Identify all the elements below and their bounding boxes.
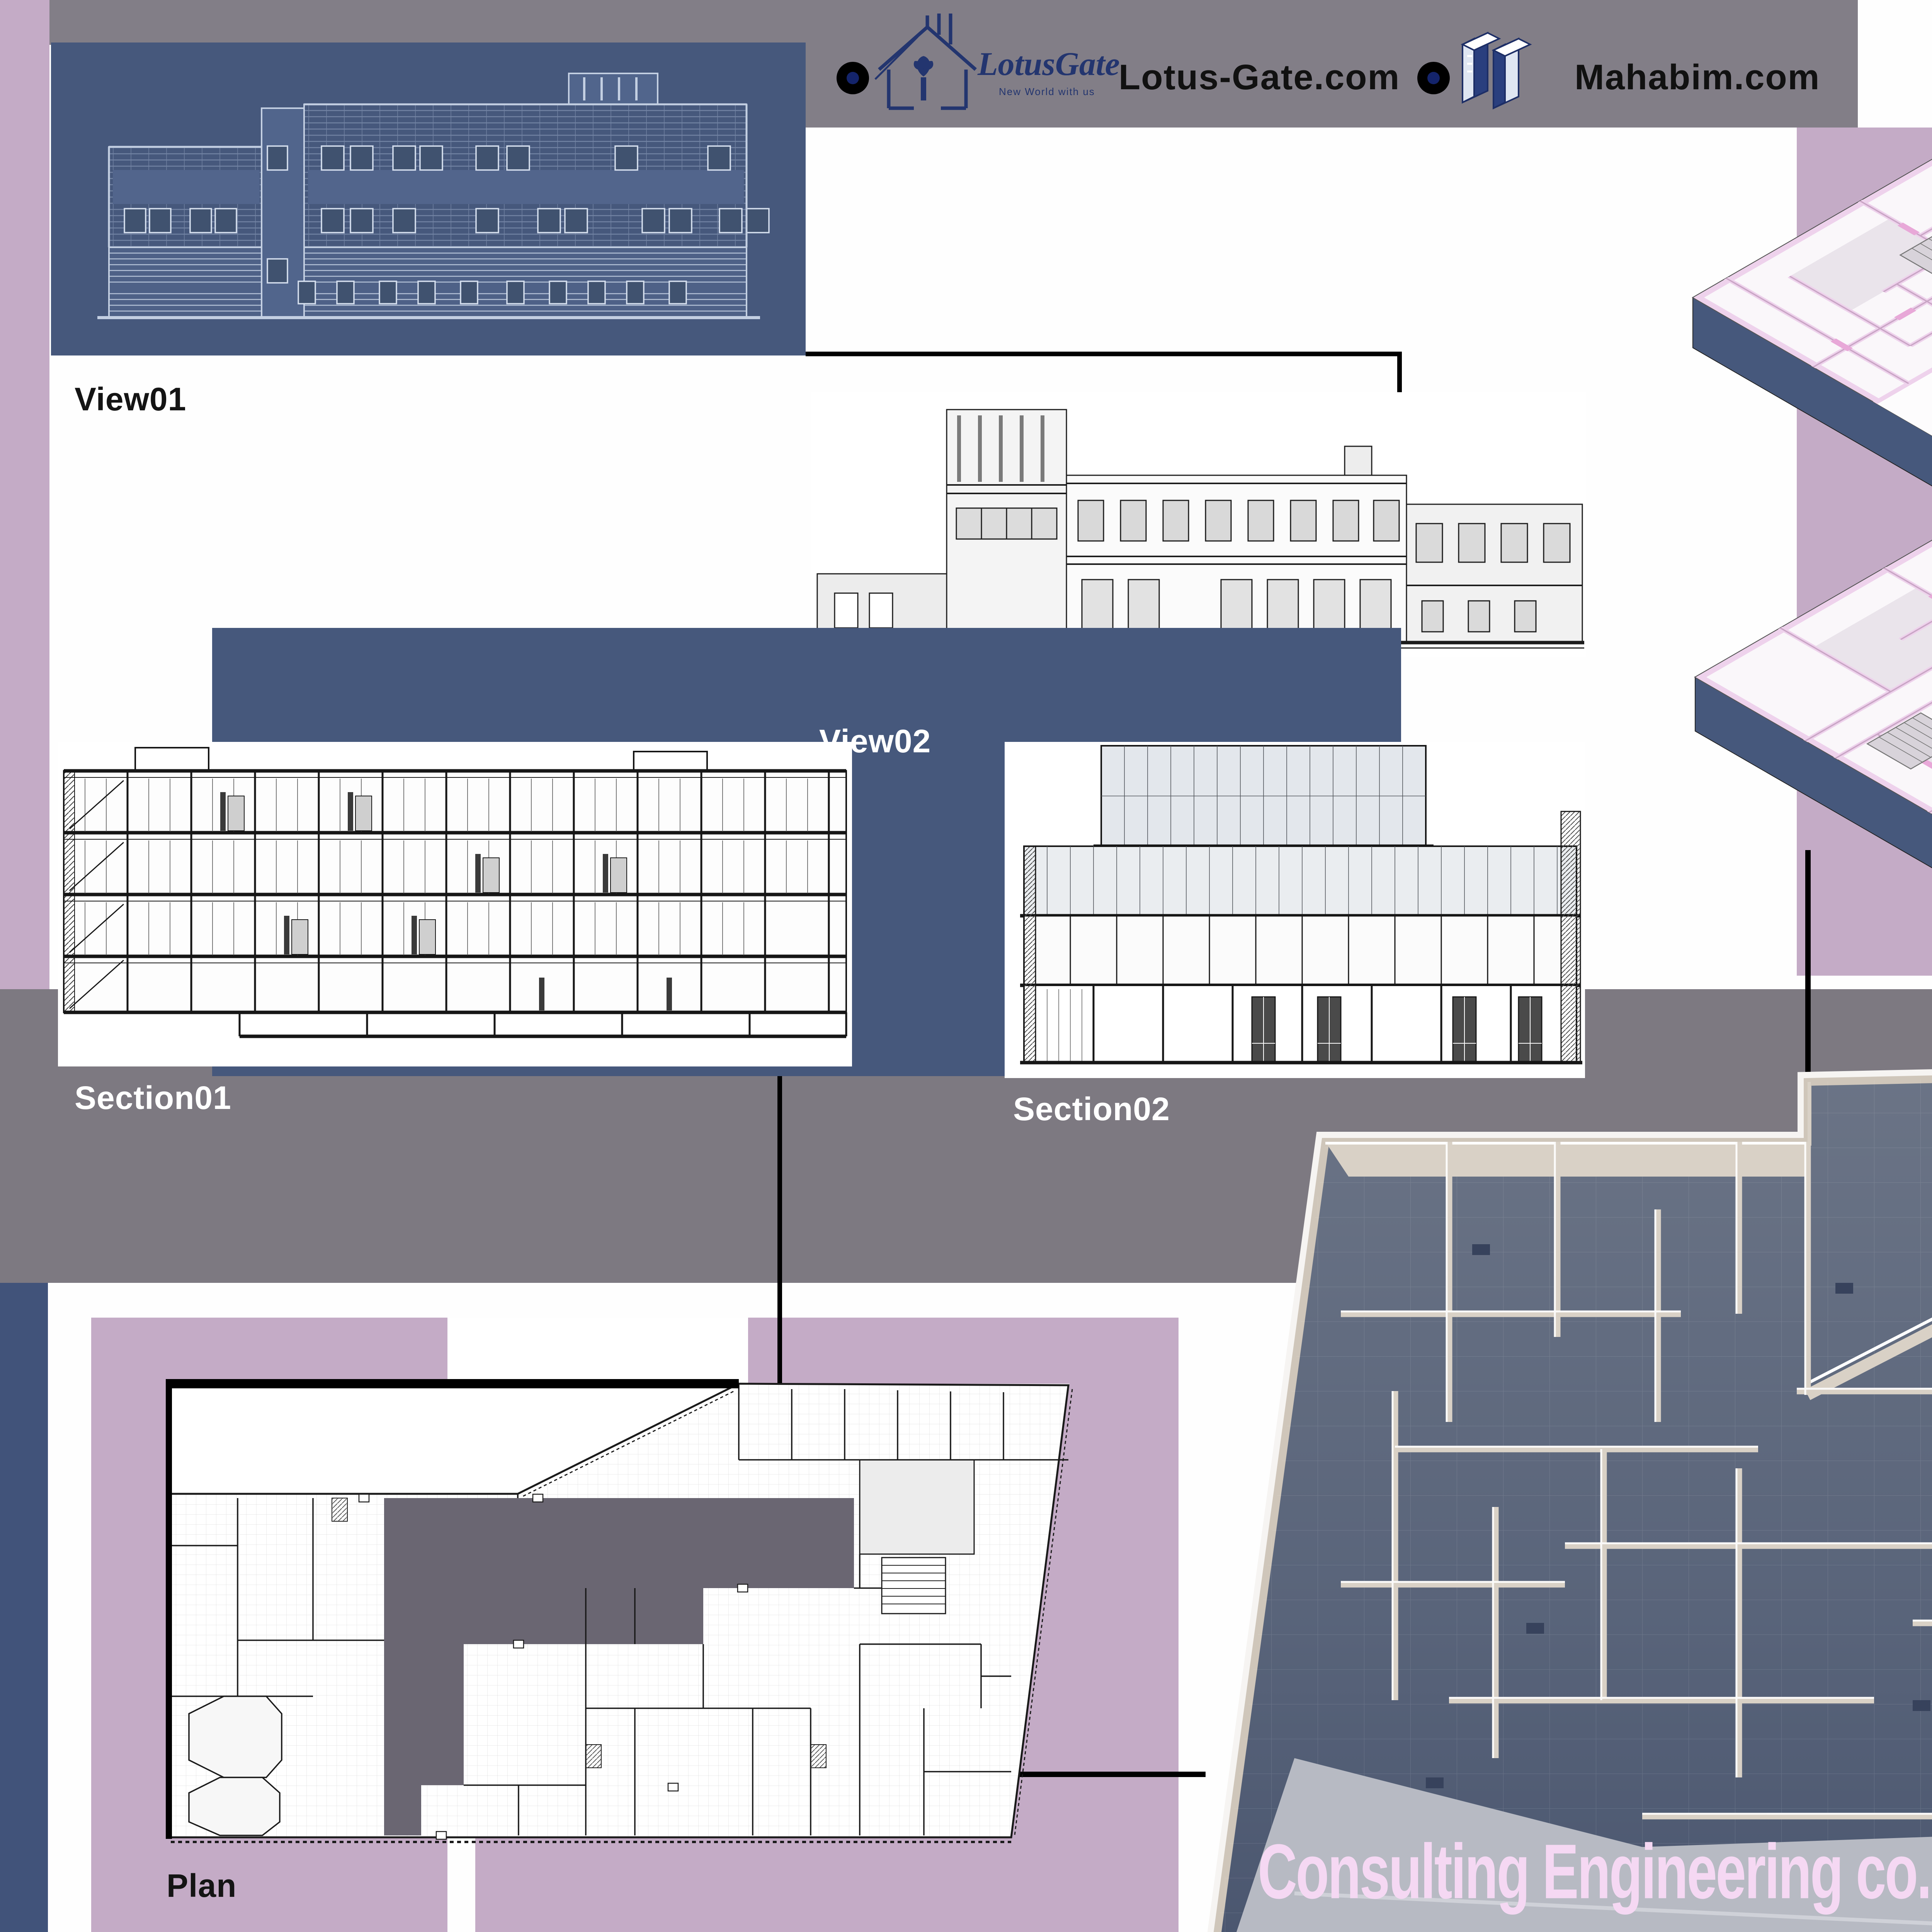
section01-label: Section01	[75, 1079, 231, 1117]
first-floor-axon	[1695, 444, 1932, 868]
view02-elevation-art	[811, 392, 1586, 657]
view01-label: View01	[75, 381, 186, 418]
section02-art	[1005, 742, 1585, 1078]
mahabim-domain: Mahabim.com	[1575, 57, 1820, 98]
poster-canvas: Second Floor First Floor	[0, 0, 1932, 1932]
connector-view01-h	[806, 352, 1402, 356]
house-gate-icon	[871, 12, 983, 112]
lotusgate-tagline: New World with us	[999, 86, 1095, 98]
plan-drawing	[166, 1374, 1089, 1868]
axon-models	[1681, 23, 1932, 951]
section02-label: Section02	[1013, 1090, 1170, 1128]
view01-drawing	[51, 43, 806, 355]
view01-elevation-art	[51, 43, 806, 355]
render-view: Consulting Engineering co. Jahrom Limite…	[1179, 1043, 1932, 1932]
section02-drawing	[1005, 742, 1585, 1078]
header-logos: LotusGate New World with us Lotus-Gate.c…	[806, 0, 1858, 128]
lotusgate-script-logo: LotusGate	[978, 44, 1120, 83]
mahabim-bullet-core	[1427, 72, 1440, 84]
section01-drawing	[58, 742, 852, 1066]
left-slate-strip	[0, 1283, 48, 1932]
second-floor-axon	[1693, 66, 1932, 498]
header-bar-thin	[49, 0, 806, 45]
lotusgate-bullet-core	[847, 72, 859, 84]
bim-cubes-icon	[1451, 21, 1551, 110]
plan-label: Plan	[167, 1867, 236, 1905]
lotusgate-domain: Lotus-Gate.com	[1119, 57, 1400, 98]
view02-drawing	[811, 392, 1586, 657]
section01-art	[58, 742, 852, 1066]
company-title: Consulting Engineering co.	[1258, 1827, 1930, 1917]
connector-section01-plan	[777, 1043, 782, 1387]
left-lavender-strip	[0, 0, 49, 989]
plan-art	[166, 1374, 1089, 1868]
render-art	[1179, 1043, 1932, 1932]
